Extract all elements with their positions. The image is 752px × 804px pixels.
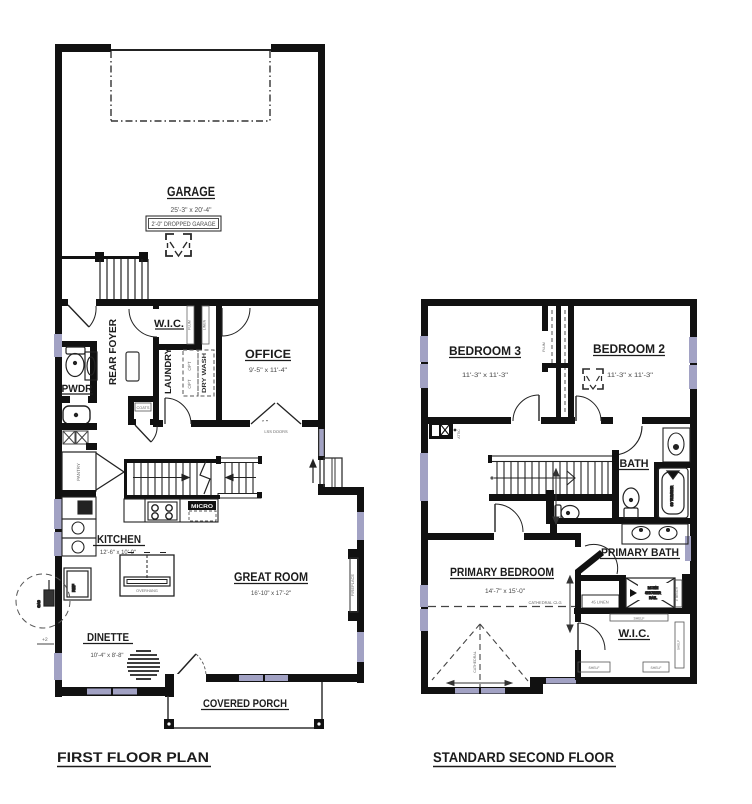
svg-text:PANTRY: PANTRY <box>76 463 81 481</box>
svg-text:BATH: BATH <box>620 458 649 470</box>
svg-text:GARAGE: GARAGE <box>167 184 215 199</box>
svg-text:SHELF: SHELF <box>589 666 600 670</box>
svg-text:BEDROOM 2: BEDROOM 2 <box>593 342 665 356</box>
svg-text:COATS: COATS <box>137 406 150 410</box>
svg-text:OFFICE: OFFICE <box>245 347 291 361</box>
svg-text:DRY WASH: DRY WASH <box>201 353 208 393</box>
svg-text:GAS: GAS <box>37 600 41 608</box>
svg-text:LAUNDRY: LAUNDRY <box>163 348 173 394</box>
svg-text:FIRST FLOOR PLAN: FIRST FLOOR PLAN <box>57 749 209 765</box>
svg-text:9'-5" x 11'-4": 9'-5" x 11'-4" <box>249 367 288 374</box>
svg-text:KITCHEN: KITCHEN <box>97 534 141 546</box>
svg-text:LINEN: LINEN <box>203 319 207 330</box>
svg-text:DINETTE: DINETTE <box>87 632 129 644</box>
svg-text:CATHEDRAL: CATHEDRAL <box>473 651 477 673</box>
svg-text:60 TUB/SHR: 60 TUB/SHR <box>670 485 674 506</box>
svg-text:STANDARD SECOND FLOOR: STANDARD SECOND FLOOR <box>433 749 614 765</box>
svg-text:MOEN: MOEN <box>648 586 659 590</box>
svg-text:2'-0" DROPPED GARAGE: 2'-0" DROPPED GARAGE <box>152 221 216 228</box>
svg-text:11'-3" x 11'-3": 11'-3" x 11'-3" <box>462 372 509 379</box>
svg-text:SHELF: SHELF <box>651 666 662 670</box>
svg-text:10'-4" x 8'-8": 10'-4" x 8'-8" <box>91 652 124 659</box>
svg-text:OVERHANG: OVERHANG <box>136 589 158 593</box>
svg-text:4' BENCH: 4' BENCH <box>675 586 679 601</box>
svg-text:OPT: OPT <box>187 361 192 371</box>
svg-text:SHELF: SHELF <box>677 640 681 650</box>
svg-text:GREAT ROOM: GREAT ROOM <box>234 570 308 584</box>
svg-text:25'-3" x 20'-4": 25'-3" x 20'-4" <box>171 207 212 214</box>
svg-text:RAIL: RAIL <box>649 596 657 600</box>
svg-text:PRIMARY BEDROOM: PRIMARY BEDROOM <box>450 565 554 579</box>
svg-text:W.I.C.: W.I.C. <box>619 628 650 640</box>
svg-text:SHOWER: SHOWER <box>645 591 661 595</box>
svg-text:ATTIC: ATTIC <box>457 429 461 439</box>
svg-text:+2: +2 <box>42 637 48 643</box>
svg-text:OPT: OPT <box>187 379 192 389</box>
svg-text:16'-10" x 17'-2": 16'-10" x 17'-2" <box>251 590 292 597</box>
svg-text:COVERED PORCH: COVERED PORCH <box>203 698 287 710</box>
svg-text:W.I.C.: W.I.C. <box>154 318 184 330</box>
svg-text:PLUM: PLUM <box>542 342 546 352</box>
svg-text:PLUM: PLUM <box>188 320 192 330</box>
svg-text:REAR FOYER: REAR FOYER <box>108 318 119 385</box>
svg-text:BEDROOM 3: BEDROOM 3 <box>449 344 521 358</box>
svg-text:CATHEDRAL CLG: CATHEDRAL CLG <box>528 600 561 605</box>
svg-text:LSS DOORS: LSS DOORS <box>264 429 288 434</box>
svg-text:11'-3" x 11'-3": 11'-3" x 11'-3" <box>607 372 654 379</box>
svg-text:MICRO: MICRO <box>191 504 214 510</box>
svg-text:FIREPLACE: FIREPLACE <box>350 574 355 597</box>
svg-text:45 LINEN: 45 LINEN <box>591 600 608 605</box>
svg-text:SHELF: SHELF <box>634 617 645 621</box>
svg-text:14'-7" x 15'-0": 14'-7" x 15'-0" <box>485 588 526 595</box>
svg-text:REF: REF <box>71 583 76 592</box>
svg-text:PWDR: PWDR <box>62 383 93 395</box>
